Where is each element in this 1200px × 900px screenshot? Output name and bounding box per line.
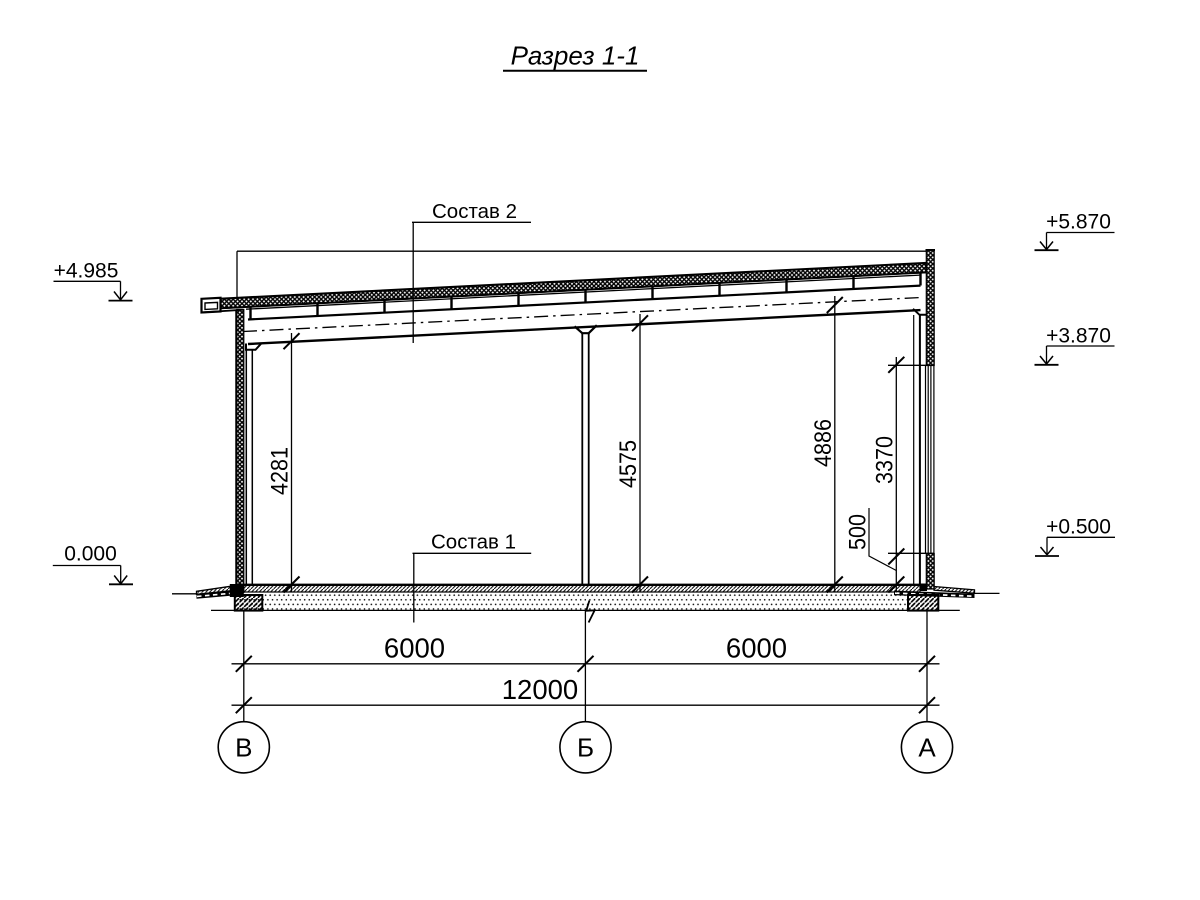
- svg-text:4281: 4281: [267, 447, 294, 495]
- svg-text:+5.870: +5.870: [1046, 211, 1111, 234]
- svg-text:+4.985: +4.985: [54, 260, 119, 283]
- svg-text:+3.870: +3.870: [1046, 325, 1111, 348]
- svg-text:4575: 4575: [615, 440, 642, 488]
- svg-text:6000: 6000: [384, 633, 445, 664]
- svg-text:Состав 2: Состав 2: [432, 200, 517, 223]
- svg-text:500: 500: [845, 514, 872, 550]
- svg-text:12000: 12000: [502, 674, 578, 705]
- svg-text:+0.500: +0.500: [1046, 516, 1111, 539]
- svg-text:Разрез 1-1: Разрез 1-1: [511, 41, 640, 71]
- svg-text:Состав 1: Состав 1: [431, 531, 516, 554]
- svg-text:3370: 3370: [872, 436, 899, 484]
- svg-text:Б: Б: [577, 733, 594, 763]
- svg-text:4886: 4886: [810, 419, 837, 467]
- svg-text:А: А: [918, 733, 936, 763]
- svg-text:6000: 6000: [726, 633, 787, 664]
- svg-text:0.000: 0.000: [64, 543, 117, 566]
- svg-text:В: В: [235, 733, 252, 763]
